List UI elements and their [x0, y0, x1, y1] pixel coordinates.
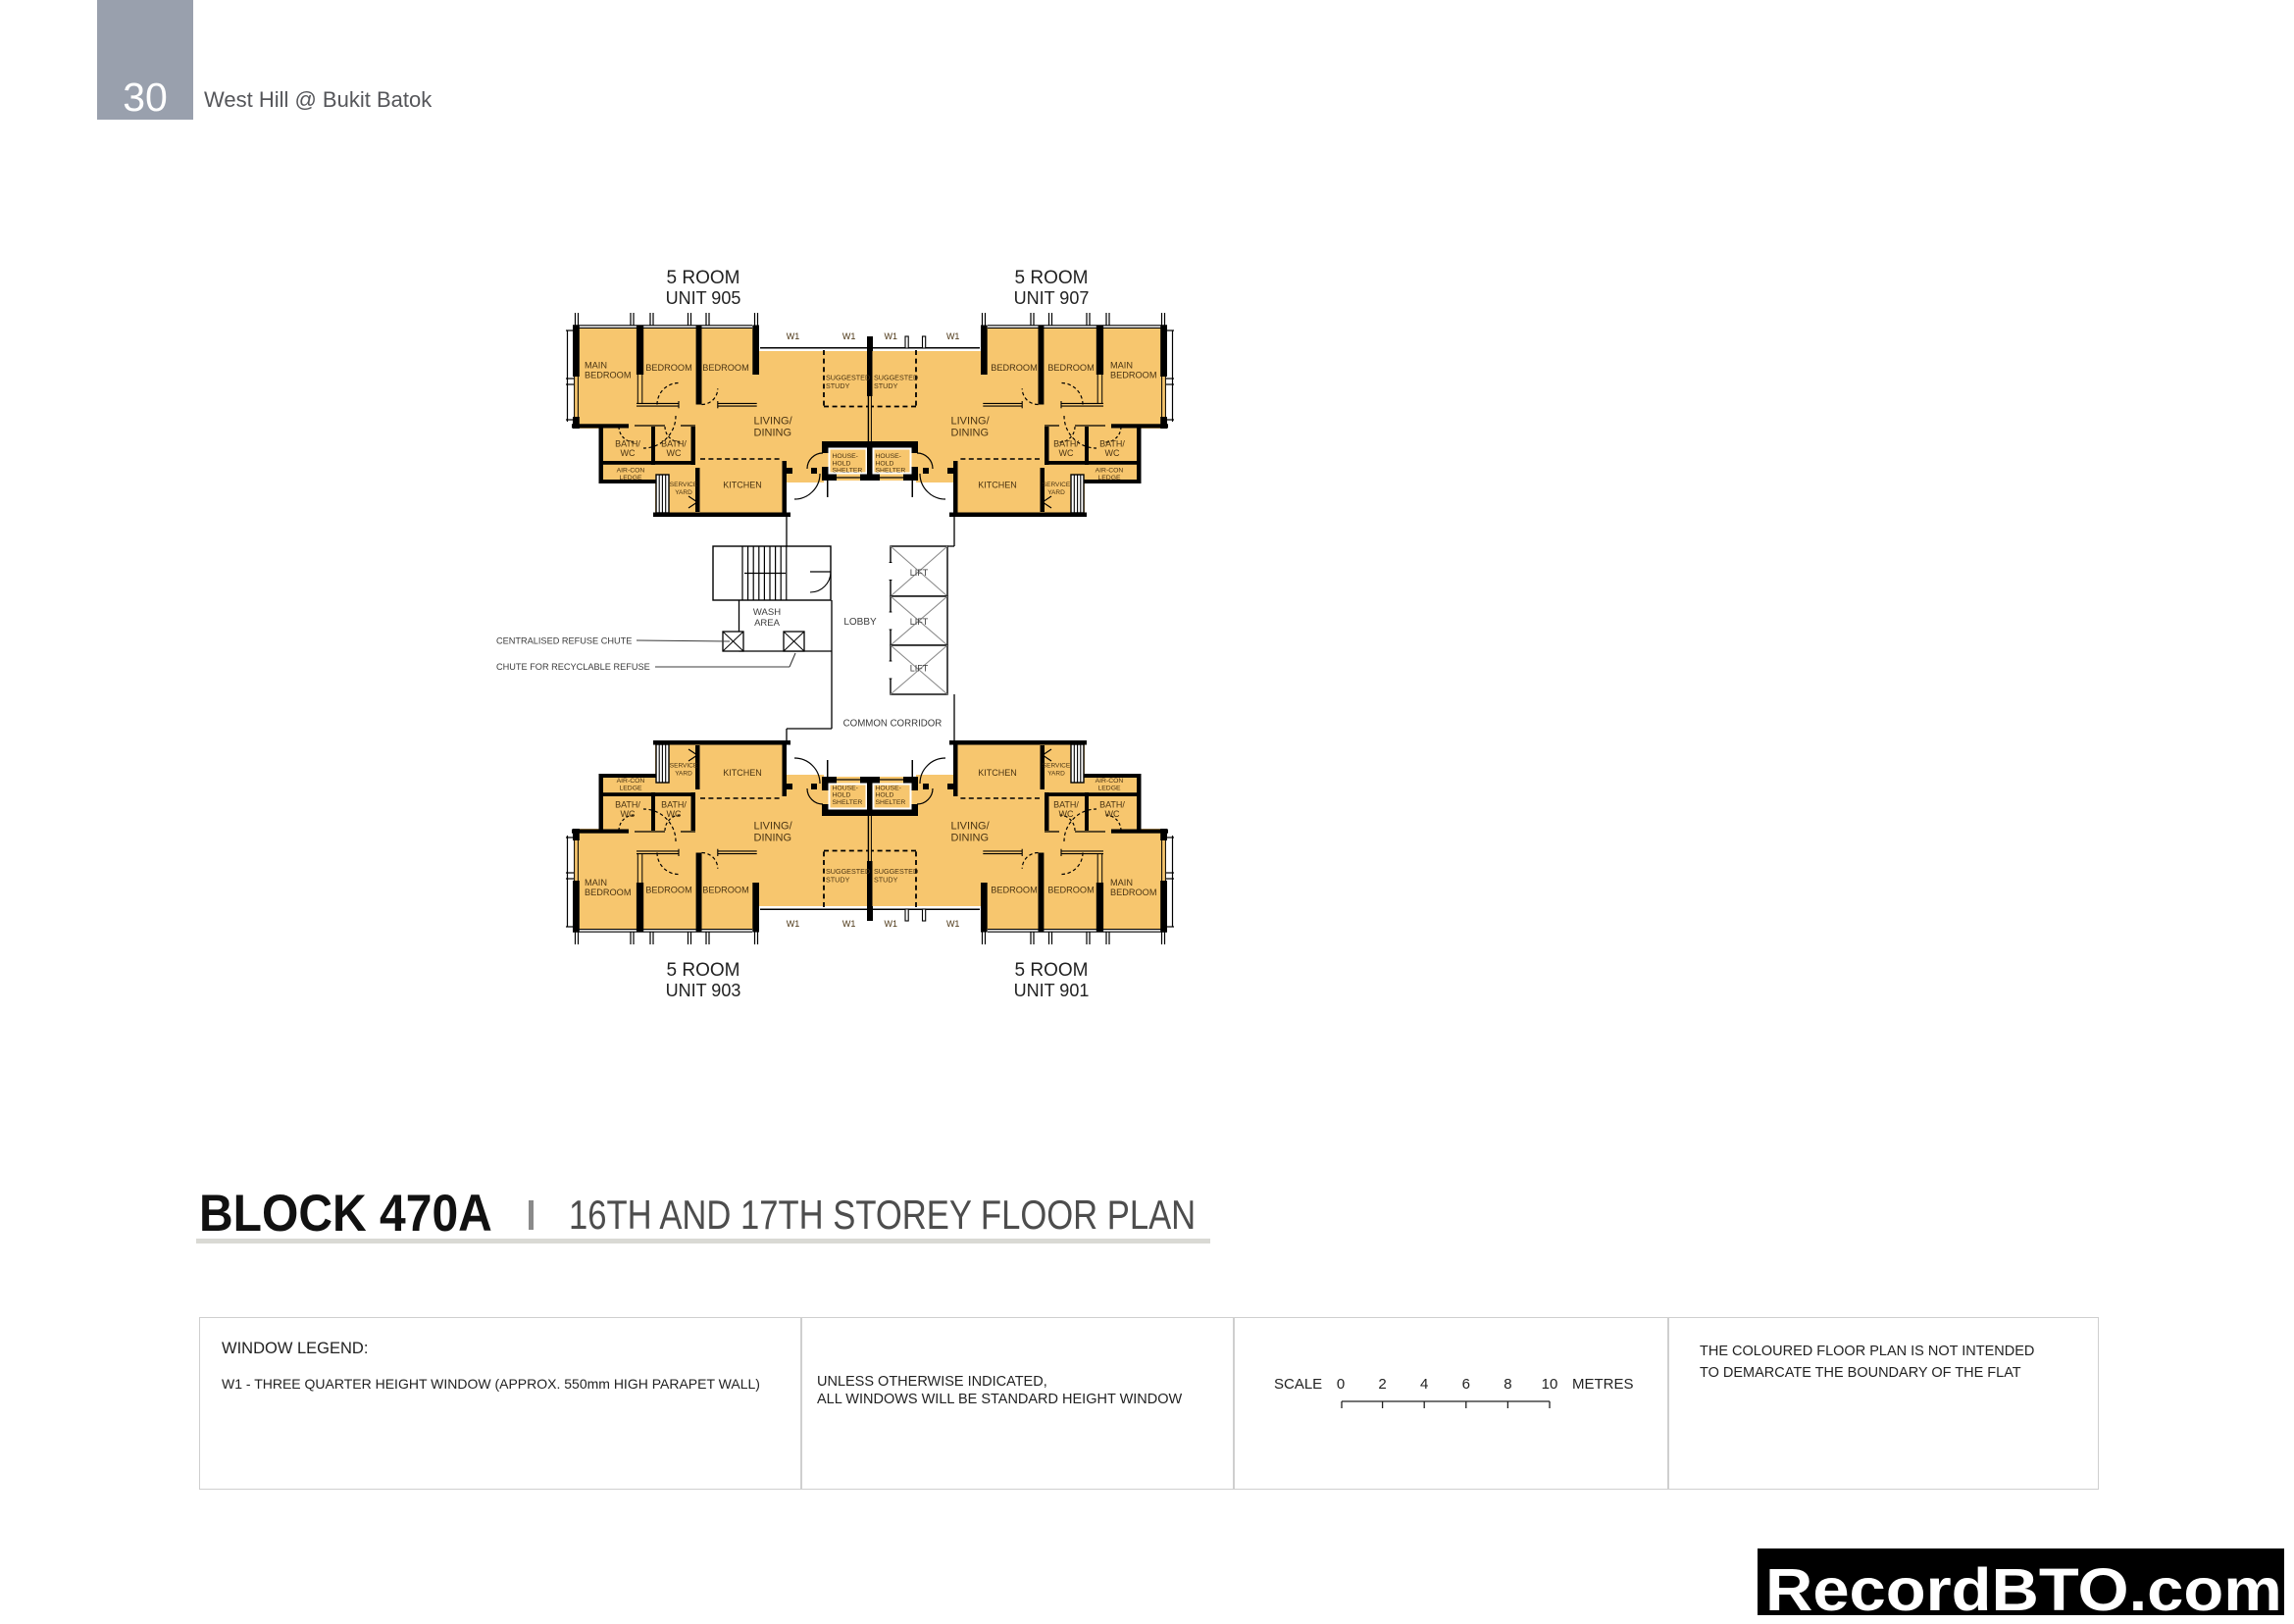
svg-text:WC: WC — [1105, 448, 1120, 458]
svg-text:YARD: YARD — [1047, 771, 1065, 778]
svg-text:YARD: YARD — [1047, 489, 1065, 496]
svg-text:HOUSE-: HOUSE- — [876, 785, 901, 791]
svg-text:BATH/: BATH/ — [615, 800, 640, 810]
svg-text:DINING: DINING — [754, 832, 792, 843]
svg-text:AIR-CON: AIR-CON — [1096, 468, 1124, 475]
svg-text:8: 8 — [1504, 1376, 1511, 1393]
svg-text:5 ROOM: 5 ROOM — [667, 960, 740, 981]
svg-text:CENTRALISED REFUSE CHUTE: CENTRALISED REFUSE CHUTE — [496, 636, 632, 646]
svg-text:LIFT: LIFT — [910, 617, 929, 627]
svg-text:BEDROOM: BEDROOM — [702, 886, 748, 895]
svg-text:YARD: YARD — [675, 489, 692, 496]
svg-text:LIFT: LIFT — [910, 568, 929, 578]
svg-text:W1: W1 — [885, 331, 898, 341]
svg-text:W1: W1 — [842, 919, 856, 929]
svg-text:10: 10 — [1542, 1376, 1558, 1393]
svg-text:UNIT 901: UNIT 901 — [1014, 981, 1090, 1000]
svg-text:W1: W1 — [787, 919, 800, 929]
svg-text:AIR-CON: AIR-CON — [617, 778, 645, 785]
svg-text:W1: W1 — [946, 919, 960, 929]
svg-text:SERVICE: SERVICE — [670, 482, 698, 488]
svg-text:4: 4 — [1420, 1376, 1428, 1393]
svg-text:AREA: AREA — [754, 618, 781, 629]
svg-text:BATH/: BATH/ — [1053, 439, 1079, 449]
svg-text:5 ROOM: 5 ROOM — [1015, 960, 1089, 981]
svg-text:BEDROOM: BEDROOM — [585, 371, 631, 381]
svg-text:5 ROOM: 5 ROOM — [667, 268, 740, 288]
svg-text:BEDROOM: BEDROOM — [991, 886, 1037, 895]
svg-text:HOLD: HOLD — [876, 460, 894, 467]
svg-text:HOLD: HOLD — [833, 792, 851, 799]
svg-text:WC: WC — [667, 448, 682, 458]
svg-text:BATH/: BATH/ — [661, 439, 687, 449]
svg-text:UNIT 905: UNIT 905 — [666, 288, 741, 308]
svg-text:LEDGE: LEDGE — [619, 475, 642, 482]
svg-text:W1: W1 — [842, 331, 856, 341]
svg-text:UNIT 907: UNIT 907 — [1014, 288, 1090, 308]
svg-text:CHUTE FOR RECYCLABLE REFUSE: CHUTE FOR RECYCLABLE REFUSE — [496, 662, 650, 672]
svg-text:BEDROOM: BEDROOM — [702, 363, 748, 373]
svg-text:BATH/: BATH/ — [615, 439, 640, 449]
svg-text:AIR-CON: AIR-CON — [1096, 778, 1124, 785]
svg-text:MAIN: MAIN — [585, 361, 607, 371]
svg-text:BATH/: BATH/ — [1099, 439, 1125, 449]
svg-text:HOLD: HOLD — [876, 792, 894, 799]
svg-text:WC: WC — [1059, 809, 1074, 819]
svg-text:LIFT: LIFT — [910, 664, 929, 674]
svg-text:SHELTER: SHELTER — [876, 468, 906, 475]
svg-text:KITCHEN: KITCHEN — [723, 768, 762, 778]
svg-text:BATH/: BATH/ — [661, 800, 687, 810]
svg-text:LEDGE: LEDGE — [1097, 475, 1121, 482]
svg-text:WASH: WASH — [753, 607, 781, 618]
svg-text:BEDROOM: BEDROOM — [645, 886, 691, 895]
svg-text:LIVING/: LIVING/ — [754, 416, 793, 428]
svg-text:DINING: DINING — [951, 832, 990, 843]
svg-text:LIVING/: LIVING/ — [754, 820, 793, 832]
svg-text:UNIT 903: UNIT 903 — [666, 981, 741, 1000]
svg-text:STUDY: STUDY — [826, 381, 850, 390]
svg-text:BEDROOM: BEDROOM — [645, 363, 691, 373]
svg-text:BATH/: BATH/ — [1053, 800, 1079, 810]
svg-text:SHELTER: SHELTER — [833, 799, 863, 806]
svg-text:WC: WC — [1105, 809, 1120, 819]
svg-text:KITCHEN: KITCHEN — [978, 768, 1017, 778]
svg-text:MAIN: MAIN — [1110, 878, 1133, 888]
svg-text:BEDROOM: BEDROOM — [585, 888, 631, 897]
svg-text:WC: WC — [621, 809, 636, 819]
svg-text:SERVICE: SERVICE — [1043, 482, 1071, 488]
svg-text:LOBBY: LOBBY — [843, 617, 877, 628]
svg-text:WC: WC — [667, 809, 682, 819]
svg-text:SERVICE: SERVICE — [1043, 763, 1071, 770]
svg-text:DINING: DINING — [754, 428, 792, 439]
svg-text:5 ROOM: 5 ROOM — [1015, 268, 1089, 288]
svg-text:SHELTER: SHELTER — [876, 799, 906, 806]
svg-text:SCALE: SCALE — [1274, 1376, 1322, 1393]
svg-text:MAIN: MAIN — [585, 878, 607, 888]
svg-text:LEDGE: LEDGE — [1097, 785, 1121, 791]
svg-text:BATH/: BATH/ — [1099, 800, 1125, 810]
svg-text:AIR-CON: AIR-CON — [617, 468, 645, 475]
svg-text:WC: WC — [1059, 448, 1074, 458]
svg-text:BEDROOM: BEDROOM — [1047, 363, 1094, 373]
svg-text:LEDGE: LEDGE — [619, 785, 642, 791]
svg-text:HOUSE-: HOUSE- — [833, 785, 858, 791]
svg-text:MAIN: MAIN — [1110, 361, 1133, 371]
svg-text:HOUSE-: HOUSE- — [876, 453, 901, 460]
svg-text:W1: W1 — [885, 919, 898, 929]
svg-text:BEDROOM: BEDROOM — [991, 363, 1037, 373]
svg-text:0: 0 — [1337, 1376, 1345, 1393]
svg-text:LIVING/: LIVING/ — [951, 416, 991, 428]
svg-text:BEDROOM: BEDROOM — [1110, 888, 1156, 897]
svg-text:METRES: METRES — [1572, 1376, 1634, 1393]
svg-text:BEDROOM: BEDROOM — [1110, 371, 1156, 381]
svg-text:KITCHEN: KITCHEN — [978, 481, 1017, 490]
svg-text:KITCHEN: KITCHEN — [723, 481, 762, 490]
svg-text:DINING: DINING — [951, 428, 990, 439]
svg-text:YARD: YARD — [675, 771, 692, 778]
svg-text:LIVING/: LIVING/ — [951, 820, 991, 832]
svg-text:W1: W1 — [787, 331, 800, 341]
svg-text:COMMON CORRIDOR: COMMON CORRIDOR — [843, 719, 943, 730]
svg-text:SERVICE: SERVICE — [670, 763, 698, 770]
svg-text:W1: W1 — [946, 331, 960, 341]
svg-text:2: 2 — [1378, 1376, 1386, 1393]
svg-text:STUDY: STUDY — [874, 876, 898, 885]
svg-text:WC: WC — [621, 448, 636, 458]
svg-text:6: 6 — [1462, 1376, 1470, 1393]
svg-text:SHELTER: SHELTER — [833, 468, 863, 475]
svg-text:BEDROOM: BEDROOM — [1047, 886, 1094, 895]
svg-text:STUDY: STUDY — [826, 876, 850, 885]
svg-text:HOUSE-: HOUSE- — [833, 453, 858, 460]
svg-text:STUDY: STUDY — [874, 381, 898, 390]
svg-text:HOLD: HOLD — [833, 460, 851, 467]
